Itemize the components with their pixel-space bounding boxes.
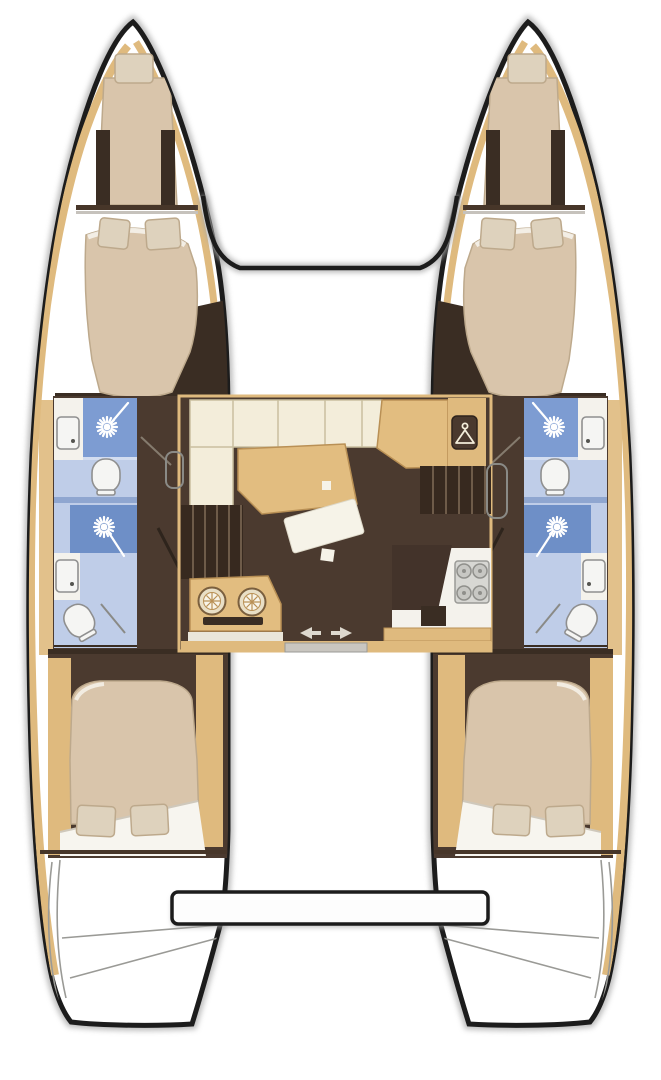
galley-counter bbox=[384, 545, 491, 641]
galley-sink-unit bbox=[188, 576, 283, 642]
floorplan-svg: Catamaran interior layout floor plan (to… bbox=[0, 0, 661, 1080]
catamaran-floorplan: Catamaran interior layout floor plan (to… bbox=[0, 0, 661, 1080]
small-cushion bbox=[320, 548, 335, 562]
salon bbox=[166, 396, 507, 652]
four-burner-stove bbox=[455, 561, 489, 603]
aft-platform-beam bbox=[172, 892, 488, 927]
galley-sink bbox=[421, 606, 446, 626]
clothes-hanger-icon bbox=[452, 416, 477, 449]
forward-crossbeam bbox=[203, 196, 457, 268]
small-cushion bbox=[322, 481, 331, 490]
door-track bbox=[285, 643, 367, 652]
